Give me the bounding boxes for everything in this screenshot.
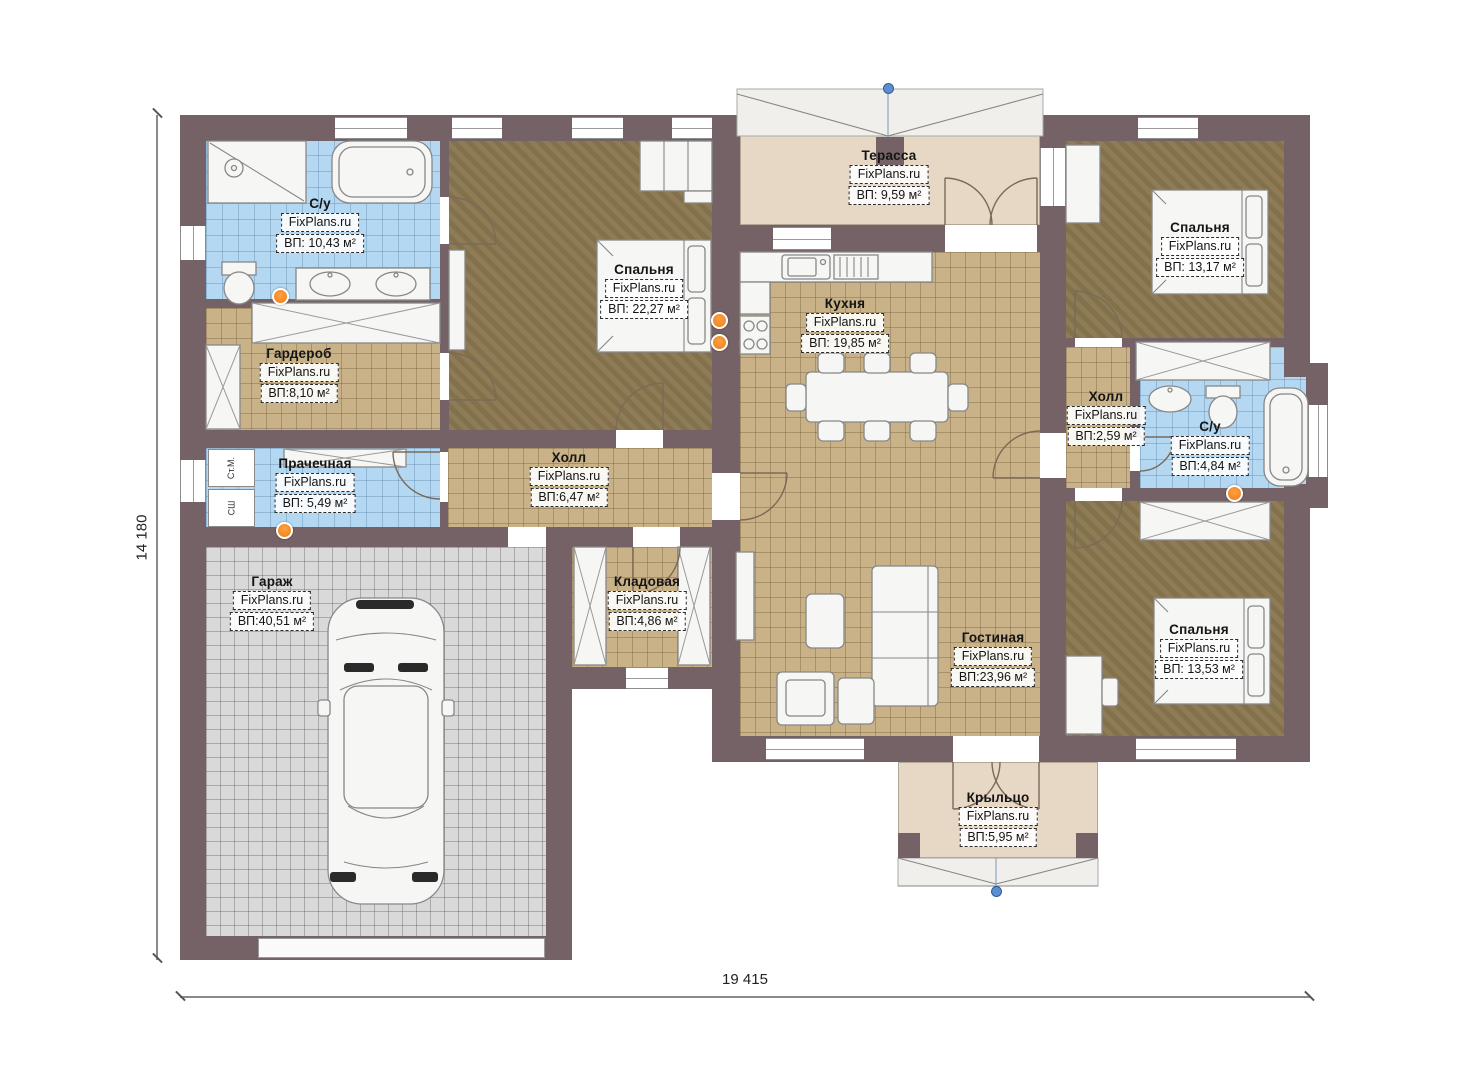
brand-watermark: FixPlans.ru — [605, 279, 684, 298]
coffee-table-icon — [806, 594, 844, 648]
room-area: ВП:40,51 м² — [230, 612, 314, 631]
room-name: Гараж — [251, 574, 292, 589]
room-label-porch: Крыльцо FixPlans.ru ВП:5,95 м² — [959, 790, 1038, 847]
drying-cabinet-label: СШ — [227, 501, 237, 516]
brand-watermark: FixPlans.ru — [1171, 436, 1250, 455]
room-label-bedroom-master: Спальня FixPlans.ru ВП: 22,27 м² — [600, 262, 688, 319]
brand-watermark: FixPlans.ru — [1161, 237, 1240, 256]
brand-watermark: FixPlans.ru — [1067, 406, 1146, 425]
room-label-hall-main: Холл FixPlans.ru ВП:6,47 м² — [530, 450, 609, 507]
sofa-icon — [838, 566, 938, 724]
room-name: Терасса — [862, 148, 917, 163]
brand-watermark: FixPlans.ru — [276, 473, 355, 492]
room-area: ВП: 13,17 м² — [1156, 258, 1244, 277]
toilet-icon — [222, 262, 256, 304]
room-label-storage: Кладовая FixPlans.ru ВП:4,86 м² — [608, 574, 687, 631]
room-name: Спальня — [1169, 622, 1229, 637]
room-label-bathroom-2: С/у FixPlans.ru ВП:4,84 м² — [1171, 419, 1250, 476]
brand-watermark: FixPlans.ru — [1160, 639, 1239, 658]
furniture-layer — [0, 0, 1474, 1080]
room-name: Холл — [552, 450, 587, 465]
brand-watermark: FixPlans.ru — [850, 165, 929, 184]
sink-icon — [1149, 386, 1191, 412]
brand-watermark: FixPlans.ru — [806, 313, 885, 332]
tv-cabinet-icon — [736, 552, 754, 640]
shower-icon — [208, 141, 306, 203]
room-area: ВП:8,10 м² — [260, 384, 337, 403]
radiator-dot-icon — [272, 288, 289, 305]
room-label-laundry: Прачечная FixPlans.ru ВП: 5,49 м² — [275, 456, 356, 513]
room-name: Холл — [1089, 389, 1124, 404]
room-name: Спальня — [1170, 220, 1230, 235]
washing-machine-label: Ст.М. — [227, 457, 237, 479]
brand-watermark: FixPlans.ru — [260, 363, 339, 382]
room-label-hall-right: Холл FixPlans.ru ВП:2,59 м² — [1067, 389, 1146, 446]
room-area: ВП:4,86 м² — [608, 612, 685, 631]
brand-watermark: FixPlans.ru — [954, 647, 1033, 666]
dimension-node-icon — [883, 83, 894, 94]
room-area: ВП: 10,43 м² — [276, 234, 364, 253]
room-name: Прачечная — [278, 456, 351, 471]
drying-cabinet: СШ — [208, 489, 255, 527]
washing-machine: Ст.М. — [208, 449, 255, 487]
room-label-garage: Гараж FixPlans.ru ВП:40,51 м² — [230, 574, 314, 631]
room-label-living-room: Гостиная FixPlans.ru ВП:23,96 м² — [951, 630, 1035, 687]
brand-watermark: FixPlans.ru — [233, 591, 312, 610]
dining-table-icon — [786, 353, 968, 441]
room-label-wardrobe-room: Гардероб FixPlans.ru ВП:8,10 м² — [260, 346, 339, 403]
double-sink-icon — [296, 268, 430, 300]
room-name: Кухня — [825, 296, 865, 311]
room-label-bathroom-1: С/у FixPlans.ru ВП: 10,43 м² — [276, 196, 364, 253]
room-area: ВП:23,96 м² — [951, 668, 1035, 687]
room-label-bedroom-3: Спальня FixPlans.ru ВП: 13,53 м² — [1155, 622, 1243, 679]
brand-watermark: FixPlans.ru — [530, 467, 609, 486]
room-label-bedroom-2: Спальня FixPlans.ru ВП: 13,17 м² — [1156, 220, 1244, 277]
room-area: ВП: 9,59 м² — [849, 186, 930, 205]
room-area: ВП:4,84 м² — [1171, 457, 1248, 476]
room-name: Гардероб — [266, 346, 331, 361]
brand-watermark: FixPlans.ru — [608, 591, 687, 610]
floor-plan-canvas: 14 180 19 415 — [0, 0, 1474, 1080]
bathtub-icon — [332, 141, 432, 203]
brand-watermark: FixPlans.ru — [959, 807, 1038, 826]
room-area: ВП: 5,49 м² — [275, 494, 356, 513]
car-top-view-icon — [318, 598, 454, 904]
room-label-terrace: Терасса FixPlans.ru ВП: 9,59 м² — [849, 148, 930, 205]
radiator-dot-icon — [711, 334, 728, 351]
radiator-dot-icon — [1226, 485, 1243, 502]
room-area: ВП:5,95 м² — [959, 828, 1036, 847]
room-area: ВП: 13,53 м² — [1155, 660, 1243, 679]
room-label-kitchen: Кухня FixPlans.ru ВП: 19,85 м² — [801, 296, 889, 353]
room-area: ВП: 19,85 м² — [801, 334, 889, 353]
radiator-dot-icon — [276, 522, 293, 539]
bathtub-icon — [1264, 388, 1308, 486]
bed-master-icon — [449, 141, 712, 352]
stove-icon — [740, 316, 770, 354]
room-name: Спальня — [614, 262, 674, 277]
room-area: ВП: 22,27 м² — [600, 300, 688, 319]
room-name: Крыльцо — [967, 790, 1030, 805]
brand-watermark: FixPlans.ru — [281, 213, 360, 232]
room-name: С/у — [309, 196, 331, 211]
room-name: С/у — [1199, 419, 1221, 434]
room-name: Гостиная — [962, 630, 1025, 645]
armchair-icon — [777, 672, 834, 725]
room-name: Кладовая — [614, 574, 680, 589]
room-area: ВП:6,47 м² — [530, 488, 607, 507]
room-area: ВП:2,59 м² — [1067, 427, 1144, 446]
dimension-node-icon — [991, 886, 1002, 897]
radiator-dot-icon — [711, 312, 728, 329]
